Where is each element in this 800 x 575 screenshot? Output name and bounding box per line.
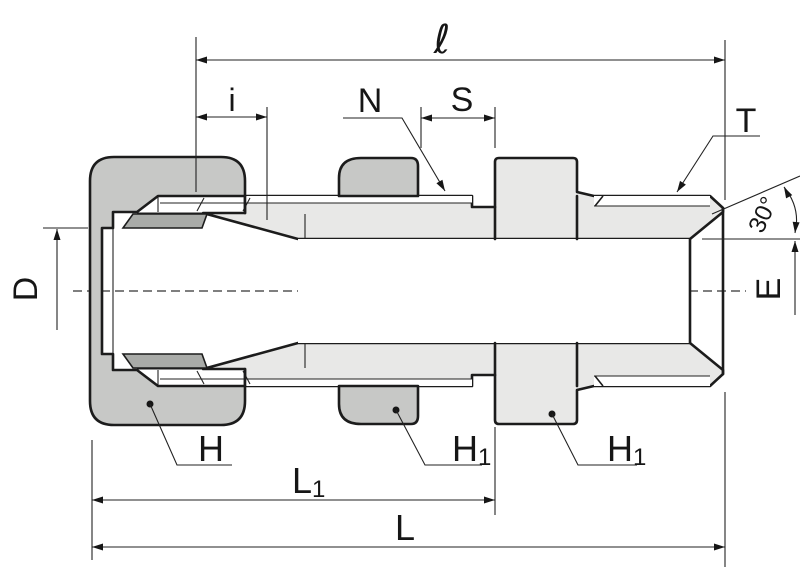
label-t: T bbox=[736, 102, 757, 140]
label-n: N bbox=[358, 82, 383, 120]
thread-band-right-bottom bbox=[594, 376, 710, 386]
locknut-lower bbox=[339, 386, 418, 424]
label-ell: ℓ bbox=[433, 17, 451, 63]
dim-d: D bbox=[7, 229, 61, 330]
label-l: L bbox=[395, 507, 415, 548]
dim-ell: ℓ bbox=[196, 17, 725, 64]
ferrule-upper bbox=[123, 214, 207, 228]
label-h1-hex: H1 bbox=[607, 428, 646, 471]
label-h: H bbox=[198, 428, 224, 469]
label-angle-30: 30° bbox=[743, 193, 783, 237]
thread-band-right-top bbox=[594, 196, 710, 206]
label-s: S bbox=[451, 81, 474, 119]
technical-drawing-canvas: ℓ i N S T bbox=[0, 0, 800, 575]
label-e: E bbox=[750, 278, 788, 301]
label-l1: L1 bbox=[292, 460, 325, 503]
dim-angle-30: 30° bbox=[743, 185, 799, 237]
ferrule-lower bbox=[123, 354, 207, 368]
dim-s: S bbox=[421, 81, 495, 122]
dim-e: E bbox=[750, 241, 799, 315]
label-h1-locknut: H1 bbox=[452, 428, 491, 471]
dim-t: T bbox=[674, 102, 760, 194]
label-d: D bbox=[7, 277, 45, 302]
dim-l1: L1 bbox=[92, 460, 495, 504]
locknut-upper bbox=[339, 158, 418, 196]
fitting-drawing: ℓ i N S T bbox=[0, 0, 800, 575]
bore bbox=[298, 239, 690, 343]
dim-l: L bbox=[92, 507, 725, 551]
dim-i: i bbox=[196, 82, 267, 121]
label-i: i bbox=[228, 82, 235, 118]
fitting-body bbox=[90, 157, 723, 425]
